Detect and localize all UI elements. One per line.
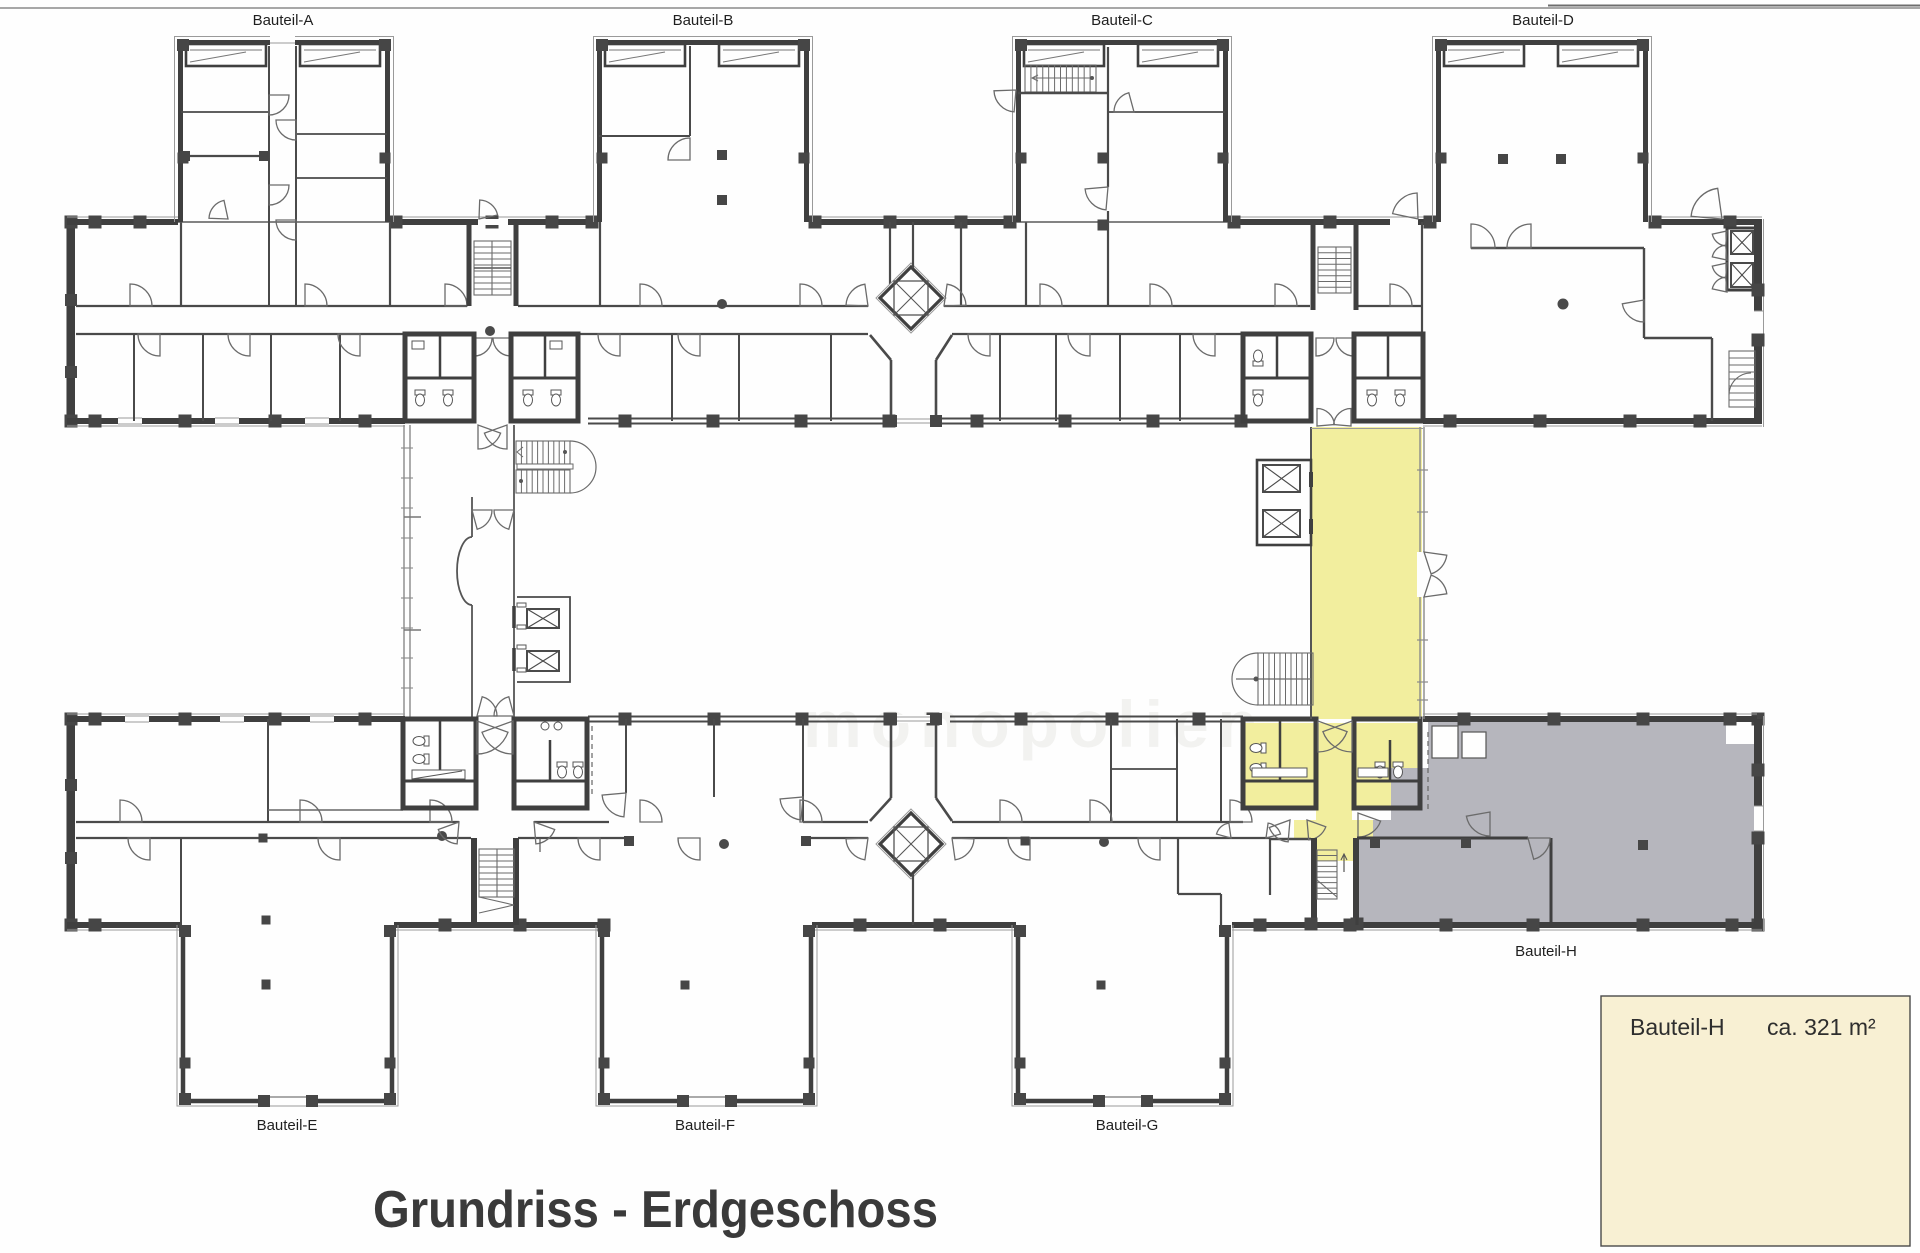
svg-text:Bauteil-H: Bauteil-H xyxy=(1630,1014,1725,1040)
svg-text:Bauteil-B: Bauteil-B xyxy=(673,12,734,29)
svg-text:Grundriss - Erdgeschoss: Grundriss - Erdgeschoss xyxy=(373,1181,938,1239)
svg-text:Bauteil-A: Bauteil-A xyxy=(253,12,314,29)
svg-text:Bauteil-D: Bauteil-D xyxy=(1512,12,1574,29)
svg-text:Bauteil-E: Bauteil-E xyxy=(257,1117,318,1134)
svg-text:Bauteil-G: Bauteil-G xyxy=(1096,1117,1159,1134)
svg-text:ca. 321 m²: ca. 321 m² xyxy=(1767,1014,1876,1040)
svg-text:Bauteil-F: Bauteil-F xyxy=(675,1117,735,1134)
svg-text:Bauteil-H: Bauteil-H xyxy=(1515,943,1577,960)
svg-text:Bauteil-C: Bauteil-C xyxy=(1091,12,1153,29)
